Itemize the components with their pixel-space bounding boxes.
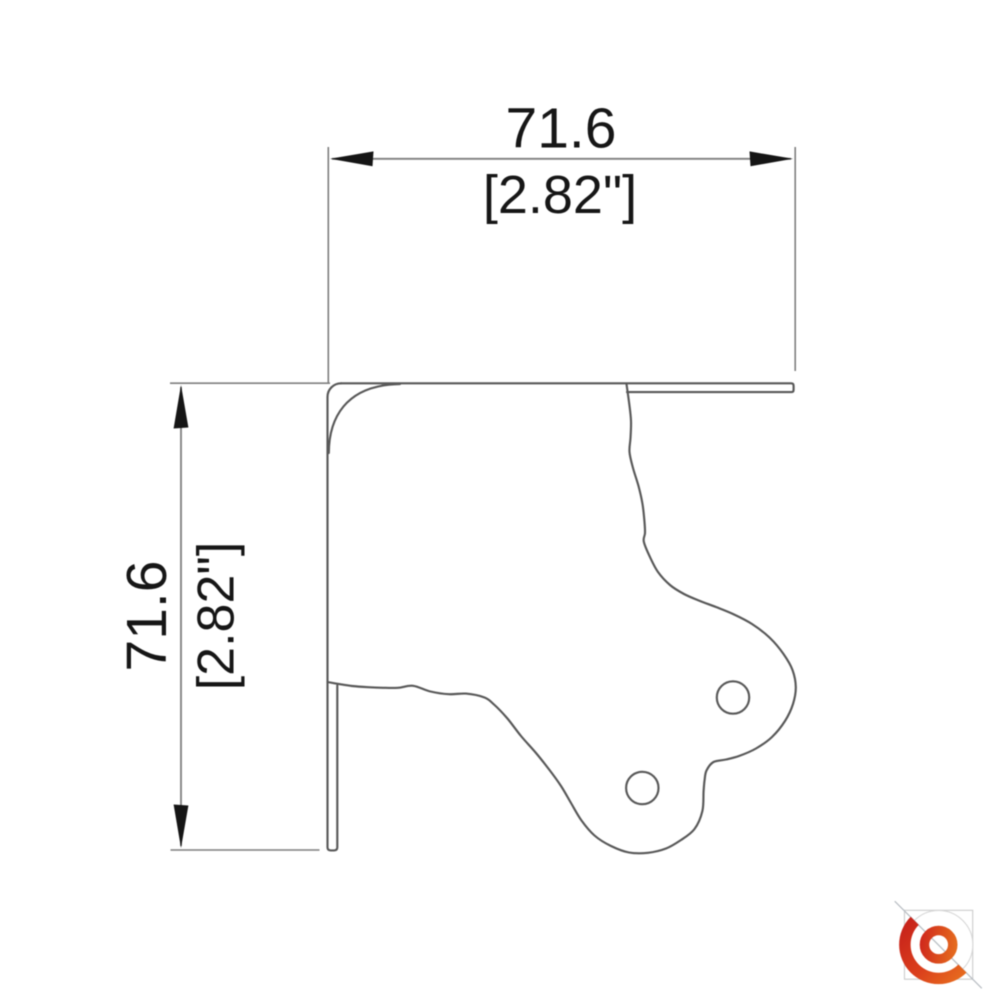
svg-text:71.6: 71.6	[506, 97, 617, 161]
svg-text:[2.82"]: [2.82"]	[188, 542, 246, 691]
svg-text:[2.82"]: [2.82"]	[483, 165, 637, 225]
svg-text:71.6: 71.6	[115, 561, 179, 672]
